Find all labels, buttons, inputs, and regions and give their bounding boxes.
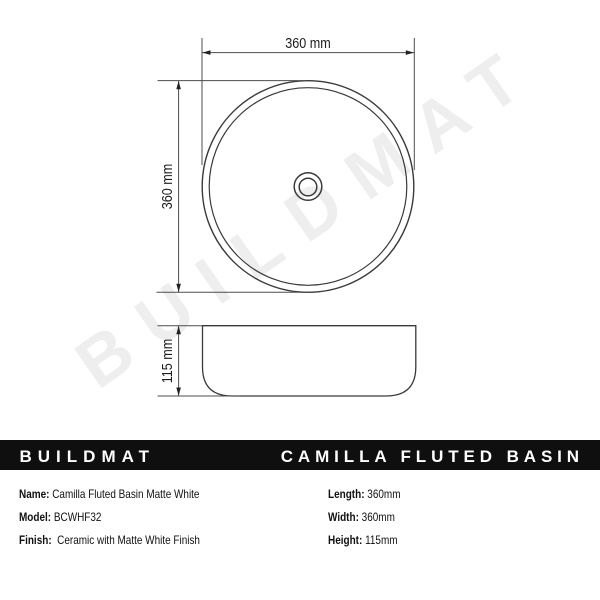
- svg-text:115 mm: 115 mm: [158, 339, 175, 384]
- svg-text:360 mm: 360 mm: [285, 34, 330, 51]
- svg-text:360 mm: 360 mm: [158, 164, 175, 209]
